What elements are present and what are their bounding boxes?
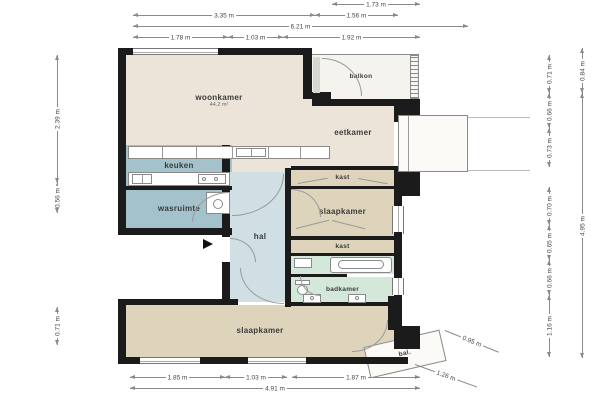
dim-right-outer2: 4.95 m bbox=[582, 93, 583, 358]
wall-bedroom-right bbox=[388, 296, 396, 330]
room-kast-onder: kast bbox=[291, 240, 394, 253]
wall-keuken-wasruimte bbox=[126, 186, 232, 190]
dim-diagonal-2: 1.26 m bbox=[415, 364, 477, 388]
room-woonkamer: woonkamer 44.2 m² bbox=[126, 55, 312, 147]
dim-bottom-seg1: 1.85 m bbox=[130, 377, 225, 378]
wall-bedroom-top-left bbox=[118, 299, 238, 305]
room-label: eetkamer bbox=[334, 129, 372, 138]
dim-label: 0.95 m bbox=[459, 334, 484, 350]
wall-kast2-bottom bbox=[291, 253, 394, 256]
dim-label: 6.21 m bbox=[289, 23, 313, 30]
dim-right-seg3: 0.73 m bbox=[549, 128, 550, 167]
room-label: slaapkamer bbox=[319, 208, 366, 217]
window-slaapkamer-bottom-2 bbox=[248, 357, 306, 364]
sink-icon bbox=[294, 258, 312, 268]
sink-divider bbox=[142, 175, 143, 183]
wall-top-right bbox=[218, 48, 312, 55]
room-kast-boven: kast bbox=[291, 170, 394, 186]
window-badkamer-right bbox=[392, 278, 404, 295]
faucet-icon bbox=[310, 296, 314, 300]
dim-top-seg2: 1.03 m bbox=[228, 37, 283, 38]
wall-slaap-kast2 bbox=[291, 236, 394, 240]
dim-label: 3.35 m bbox=[212, 12, 236, 19]
dim-right-seg6: 0.66 m bbox=[549, 260, 550, 295]
extension-line-2 bbox=[468, 170, 530, 171]
balkon-railing-top bbox=[312, 54, 419, 55]
burner-icon bbox=[214, 177, 218, 181]
dim-label: 1.92 m bbox=[340, 34, 364, 41]
dim-diagonal-1: 0.95 m bbox=[445, 330, 499, 353]
wall-left bbox=[118, 48, 126, 235]
dim-left-seg3: 0.71 m bbox=[57, 307, 58, 345]
dim-top-balkon: 1.73 m bbox=[332, 4, 420, 5]
faucet-icon bbox=[355, 296, 359, 300]
entrance-arrow-icon bbox=[203, 239, 213, 249]
wall-right-b bbox=[394, 232, 402, 278]
dim-label: 0.73 m bbox=[546, 136, 553, 160]
window-slaapkamer-bottom-1 bbox=[140, 357, 200, 364]
balkon-railing-right bbox=[410, 55, 419, 99]
window-slaapkamer-right bbox=[392, 206, 404, 234]
dim-top-balkon2: 1.56 m bbox=[315, 15, 398, 16]
dim-label: 0.70 m bbox=[546, 194, 553, 218]
dim-right-seg7: 1.16 m bbox=[549, 295, 550, 357]
room-area: 44.2 m² bbox=[210, 103, 229, 109]
dim-label: 4.95 m bbox=[579, 214, 586, 238]
dim-label: 0.66 m bbox=[546, 99, 553, 123]
dim-left-seg2: 0.56 m bbox=[57, 183, 58, 213]
dim-label: 0.65 m bbox=[546, 231, 553, 255]
counter-divider bbox=[162, 147, 163, 158]
dim-right-seg2: 0.66 m bbox=[549, 93, 550, 128]
dim-label: 1.87 m bbox=[344, 374, 368, 381]
dim-top-seg3: 1.92 m bbox=[283, 37, 420, 38]
dim-label: 0.71 m bbox=[54, 314, 61, 338]
room-label: slaapkamer bbox=[236, 327, 283, 336]
window-bay-glass-line bbox=[408, 116, 409, 171]
dim-left-seg1: 2.39 m bbox=[57, 55, 58, 183]
wall-column-2 bbox=[394, 168, 420, 196]
dim-right-seg1: 0.71 m bbox=[549, 55, 550, 93]
floor-plan: woonkamer 44.2 m² balkon eetkamer keuken… bbox=[0, 0, 600, 400]
dim-top-seg1: 1.78 m bbox=[133, 37, 228, 38]
wall-left-lower bbox=[118, 299, 126, 364]
dim-bottom-seg2: 1.03 m bbox=[225, 377, 287, 378]
sink-divider bbox=[251, 149, 252, 156]
dim-bottom-total: 4.91 m bbox=[130, 388, 420, 389]
wall-kast1-bottom bbox=[291, 186, 394, 189]
dim-label: 1.78 m bbox=[169, 34, 193, 41]
dim-label: 1.03 m bbox=[244, 34, 268, 41]
dim-label: 2.39 m bbox=[54, 107, 61, 131]
dim-label: 0.66 m bbox=[546, 266, 553, 290]
dim-right-outer1: 0.84 m bbox=[582, 48, 583, 93]
room-label: kast bbox=[335, 174, 349, 181]
dim-label: 1.73 m bbox=[364, 1, 388, 8]
wall-column-3 bbox=[394, 326, 420, 349]
balkon-door-panel bbox=[313, 57, 320, 93]
counter-divider bbox=[300, 147, 301, 158]
dim-top-total: 6.21 m bbox=[133, 26, 468, 27]
counter-divider bbox=[232, 147, 233, 158]
dim-label: 1.85 m bbox=[166, 374, 190, 381]
room-label: keuken bbox=[164, 162, 193, 171]
dim-top-woonkamer: 3.35 m bbox=[133, 15, 315, 16]
extension-line-1 bbox=[468, 117, 530, 118]
wall-eetkamer-top bbox=[312, 99, 394, 106]
dim-right-seg5: 0.65 m bbox=[549, 225, 550, 260]
burner-icon bbox=[202, 177, 206, 181]
wall-kast1-top bbox=[291, 166, 394, 170]
counter-divider bbox=[196, 147, 197, 158]
dim-label: 1.03 m bbox=[244, 374, 268, 381]
counter-divider bbox=[268, 147, 269, 158]
dim-label: 1.56 m bbox=[345, 12, 369, 19]
room-label: kast bbox=[335, 243, 349, 250]
dim-bottom-seg3: 1.87 m bbox=[292, 377, 420, 378]
dim-right-seg4: 0.70 m bbox=[549, 187, 550, 225]
bathtub-basin-icon bbox=[338, 260, 384, 269]
wall-wasruimte-bottom bbox=[118, 228, 232, 235]
dim-label: 0.84 m bbox=[579, 59, 586, 83]
dim-label: 1.26 m bbox=[433, 369, 458, 384]
room-label: hal bbox=[254, 233, 266, 242]
dim-label: 4.91 m bbox=[263, 385, 287, 392]
dim-label: 0.71 m bbox=[546, 62, 553, 86]
dim-label: 0.56 m bbox=[54, 186, 61, 210]
window-woonkamer-top bbox=[133, 48, 218, 55]
room-label: badkamer bbox=[326, 286, 359, 293]
dim-label: 1.16 m bbox=[546, 314, 553, 338]
